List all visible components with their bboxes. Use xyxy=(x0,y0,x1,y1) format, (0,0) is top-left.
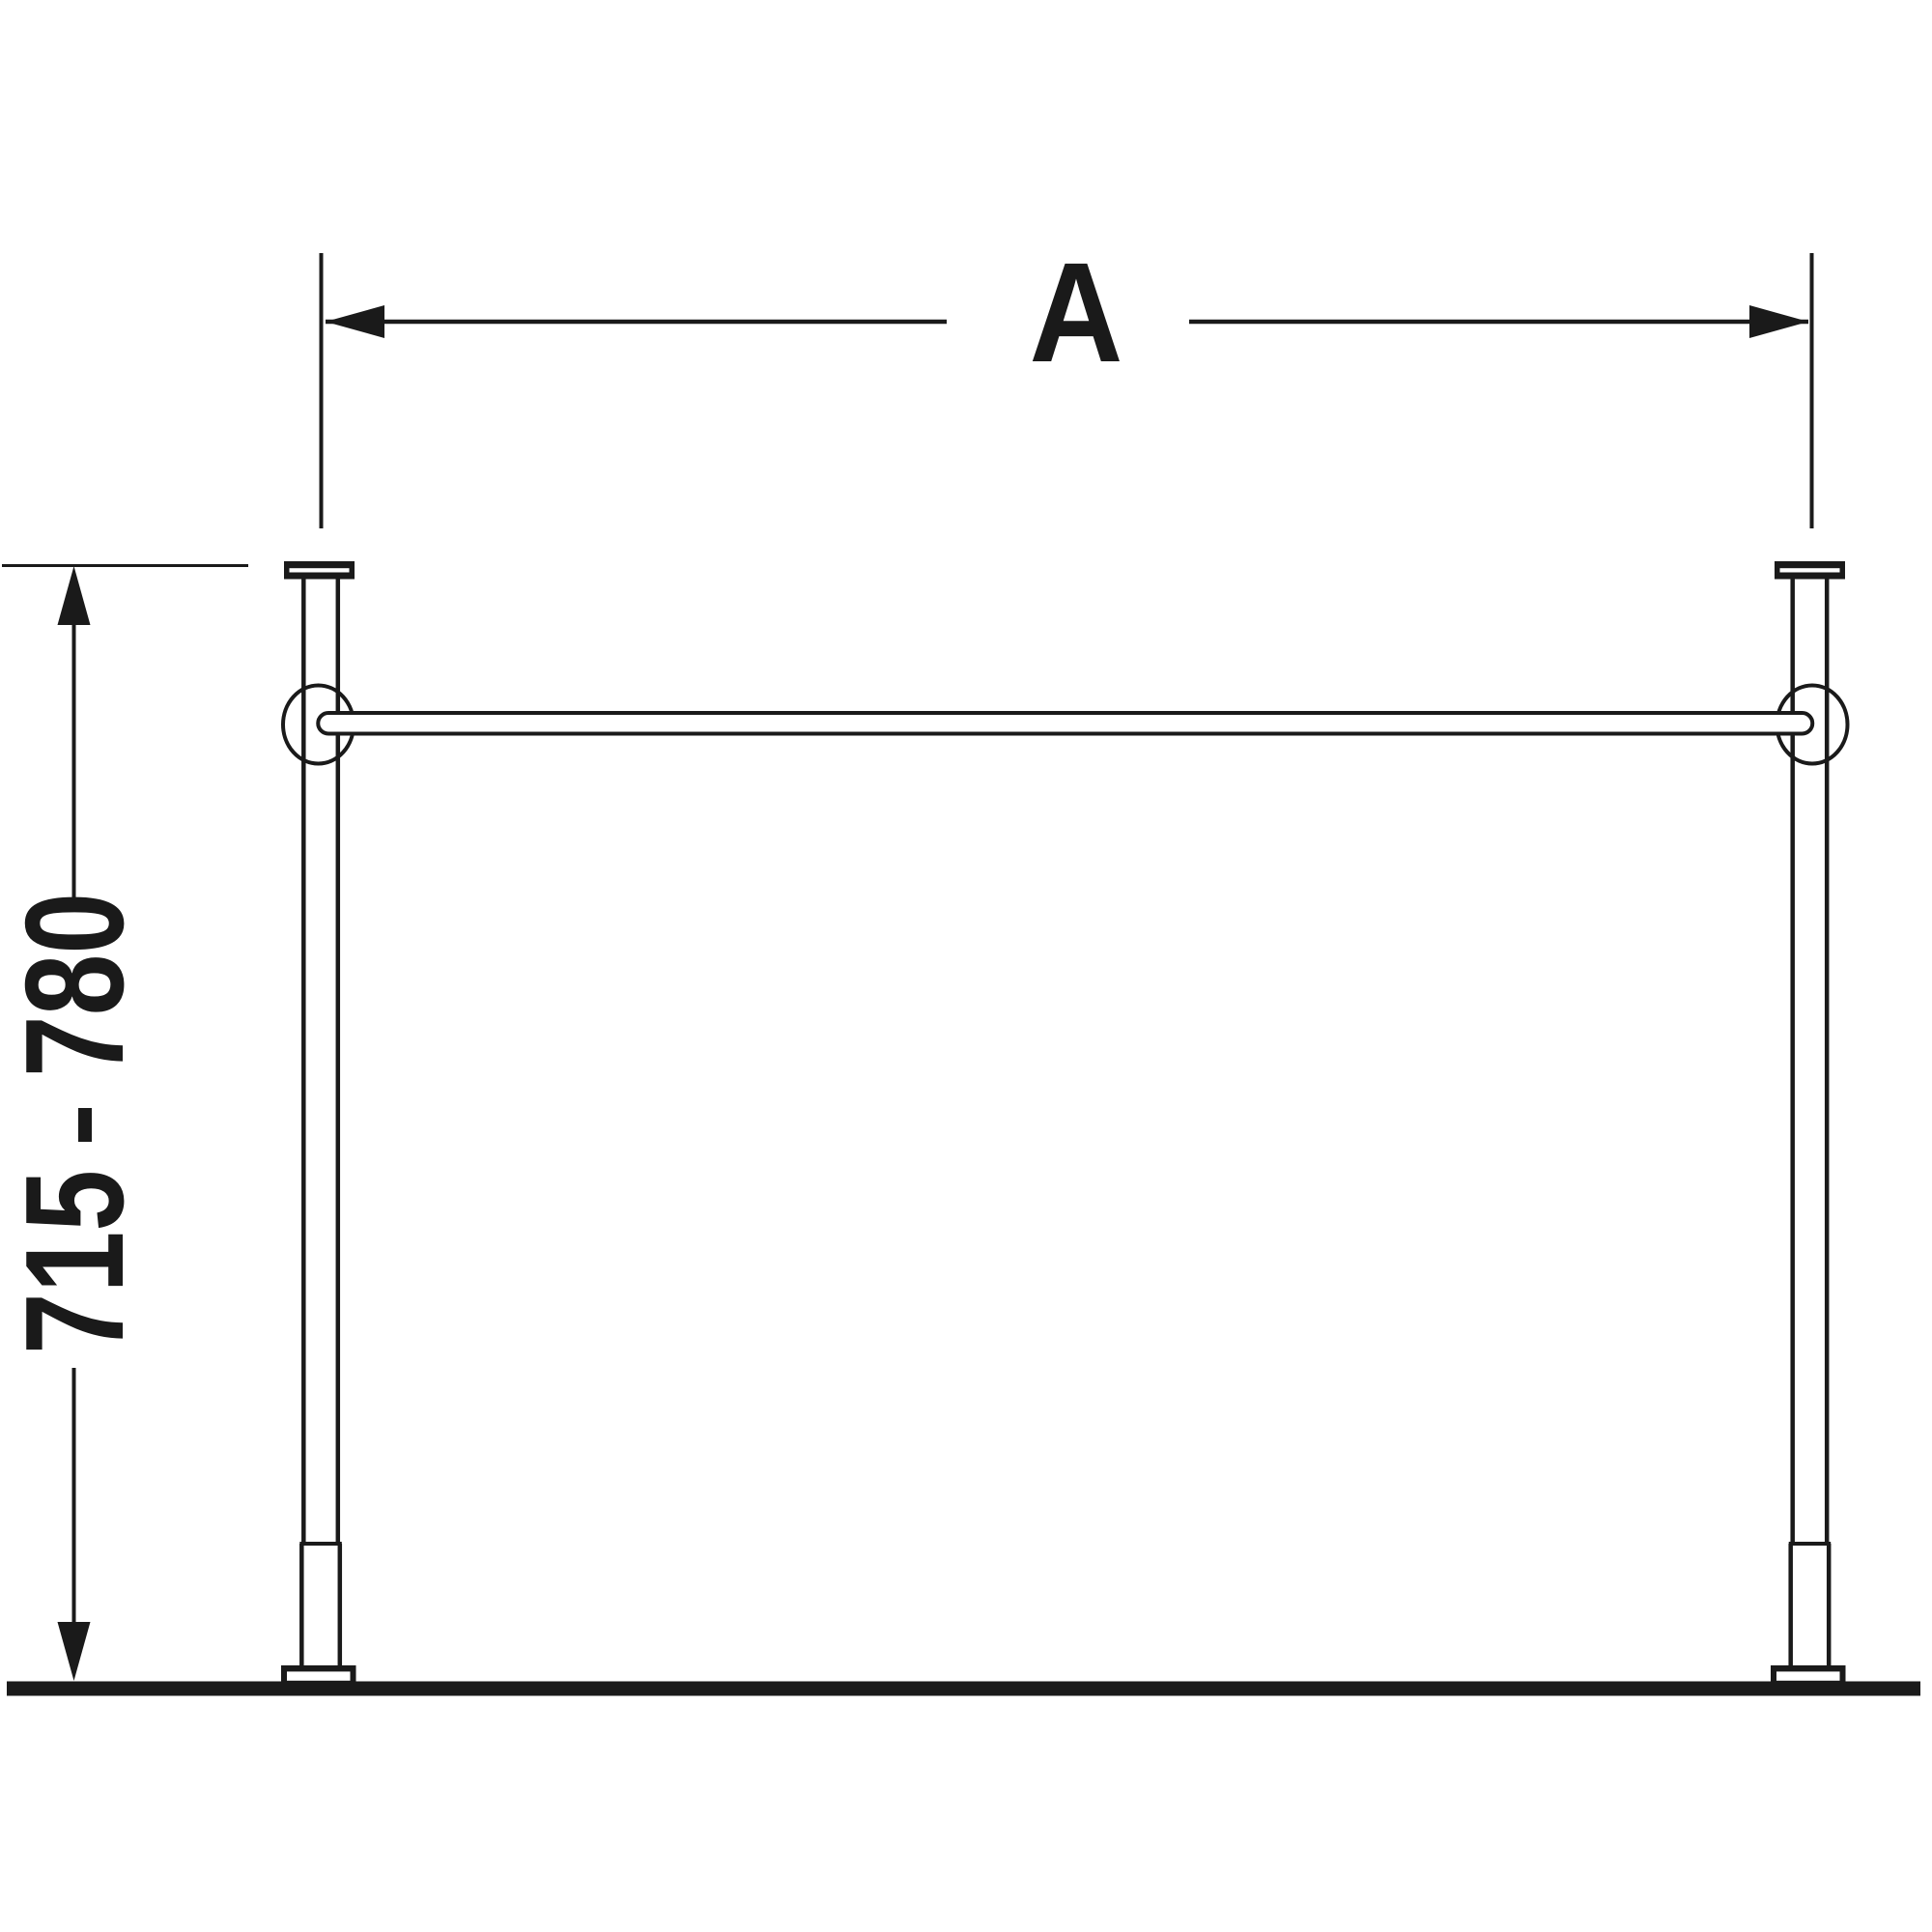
svg-text:A: A xyxy=(1030,234,1123,392)
svg-text:715: 715 xyxy=(0,1170,153,1354)
svg-text:780: 780 xyxy=(0,893,153,1077)
